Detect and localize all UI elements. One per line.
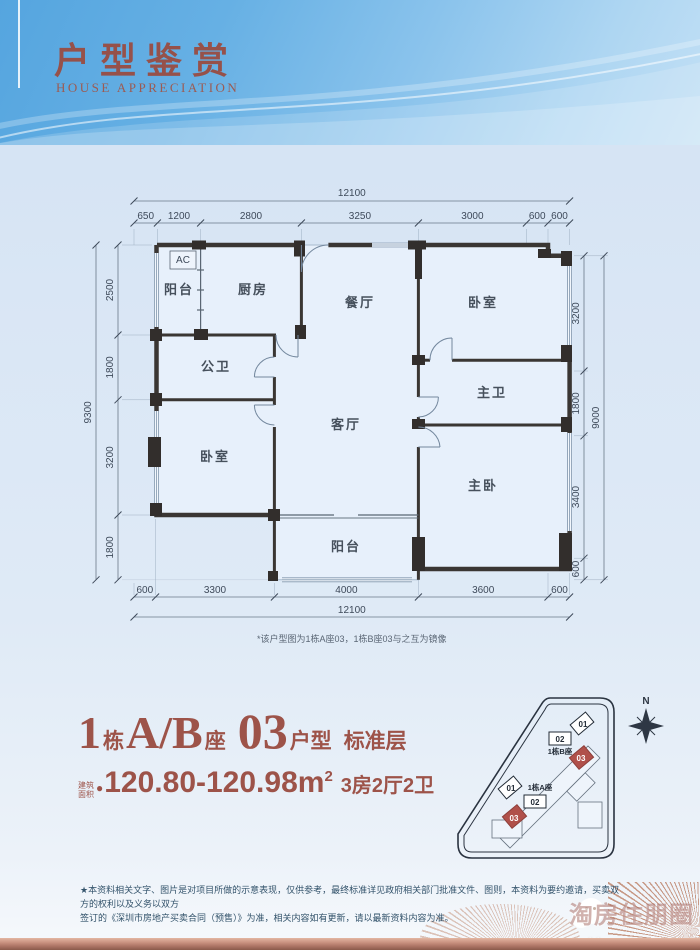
header-accent-line <box>18 0 20 88</box>
dim-bottom-4: 3600 <box>472 585 495 596</box>
compass: N <box>628 696 664 744</box>
site-plan: 01 02 1栋B座 03 01 1栋A座 02 03 N <box>450 692 680 874</box>
area-label: 建筑 面积 <box>78 781 94 799</box>
room-label-bedroom-master: 主卧 <box>468 478 498 493</box>
dim-left-2: 1800 <box>105 356 116 379</box>
floor-plan: AC 阳台 厨房 餐厅 卧室 公卫 主卫 卧室 客厅 主卧 阳台 <box>72 175 628 650</box>
dim-bottom-2: 3300 <box>204 585 227 596</box>
unit-type-label: 户型 <box>290 725 332 755</box>
room-label-bedroom-left: 卧室 <box>200 449 230 464</box>
dim-left-1: 2500 <box>105 278 116 301</box>
compass-north-label: N <box>642 696 649 707</box>
site-a-unit-03: 03 <box>510 814 519 823</box>
dim-top-1: 650 <box>137 211 154 222</box>
unit-block-letters: A/B <box>126 710 203 756</box>
room-label-kitchen: 厨房 <box>238 282 268 297</box>
area-value: 120.80-120.98m <box>104 766 324 800</box>
dim-bottom-1: 600 <box>136 585 153 596</box>
room-label-dining: 餐厅 <box>344 295 375 310</box>
dim-top-5: 3000 <box>461 211 484 222</box>
dim-right-2: 1800 <box>571 392 582 415</box>
ac-label: AC <box>176 255 190 266</box>
dim-left-4: 1800 <box>105 536 116 559</box>
dim-right-total: 9000 <box>591 406 602 429</box>
dim-right-1: 3200 <box>571 302 582 325</box>
dim-top-2: 1200 <box>168 211 191 222</box>
area-sup: 2 <box>324 768 332 785</box>
unit-floor-type: 标准层 <box>344 725 407 755</box>
unit-building-number: 1 <box>78 710 101 756</box>
site-block-b-label: 1栋B座 <box>548 746 573 756</box>
room-count: 3房2厅2卫 <box>341 769 434 798</box>
area-bullet: ● <box>96 781 103 795</box>
dim-bottom-total: 12100 <box>338 605 366 616</box>
dim-top-total: 12100 <box>338 188 366 199</box>
disclaimer-line-1: ★本资料相关文字、图片是对项目所做的示意表现，仅供参考，最终标准详见政府相关部门… <box>80 884 628 912</box>
disclaimer-line-2: 签订的《深圳市房地产买卖合同（预售）》为准，相关内容如有更新，请以最新资料内容为… <box>80 912 628 926</box>
watermark-chinese: 淘房住朋圈 <box>569 895 694 930</box>
unit-area-line: 建筑 面积 ● 120.80-120.98m 2 3房2厅2卫 <box>78 766 434 803</box>
unit-number: 03 <box>238 706 288 756</box>
site-a-unit-02: 02 <box>531 798 540 807</box>
room-label-balcony-bottom: 阳台 <box>331 539 361 554</box>
room-label-living: 客厅 <box>331 417 361 432</box>
site-b-unit-03: 03 <box>577 754 586 763</box>
site-b-unit-01: 01 <box>579 720 588 729</box>
mirror-note: *该户型图为1栋A座03，1栋B座03与之互为镜像 <box>257 633 447 644</box>
site-units-b: 01 02 1栋B座 03 <box>548 712 594 769</box>
room-label-bath-public: 公卫 <box>201 359 231 374</box>
dim-top-6: 600 <box>529 211 546 222</box>
dim-left-total: 9300 <box>83 401 94 424</box>
poster-page: 户型鉴赏 HOUSE APPRECIATION <box>0 0 700 950</box>
unit-title-line: 1 栋 A/B 座 03 户型 标准层 <box>78 706 434 756</box>
dim-left-3: 3200 <box>105 446 116 469</box>
page-title: 户型鉴赏 <box>54 32 238 84</box>
unit-title-block: 1 栋 A/B 座 03 户型 标准层 建筑 面积 ● 120.80-120.9… <box>78 706 434 803</box>
rosegold-bottom-bar <box>0 938 700 950</box>
site-block-a-label: 1栋A座 <box>528 782 553 792</box>
header-banner: 户型鉴赏 HOUSE APPRECIATION <box>0 0 700 145</box>
unit-dong-label: 栋 <box>103 725 124 755</box>
dim-top-7: 600 <box>551 211 568 222</box>
dim-right-4: 600 <box>571 560 582 577</box>
unit-zuo-label: 座 <box>205 725 226 755</box>
dim-top-4: 3250 <box>349 211 372 222</box>
page-subtitle: HOUSE APPRECIATION <box>56 80 239 96</box>
room-label-bedroom-top: 卧室 <box>468 295 498 310</box>
ac-platform: AC <box>170 251 196 269</box>
dim-bottom-5: 600 <box>551 585 568 596</box>
room-label-bath-master: 主卫 <box>477 385 507 400</box>
site-a-unit-01: 01 <box>507 784 516 793</box>
disclaimer-text: ★本资料相关文字、图片是对项目所做的示意表现，仅供参考，最终标准详见政府相关部门… <box>80 884 628 926</box>
dim-top-3: 2800 <box>240 211 263 222</box>
dim-bottom-3: 4000 <box>335 585 358 596</box>
room-label-balcony-top: 阳台 <box>164 282 194 297</box>
site-b-unit-02: 02 <box>556 735 565 744</box>
dim-right-3: 3400 <box>571 485 582 508</box>
